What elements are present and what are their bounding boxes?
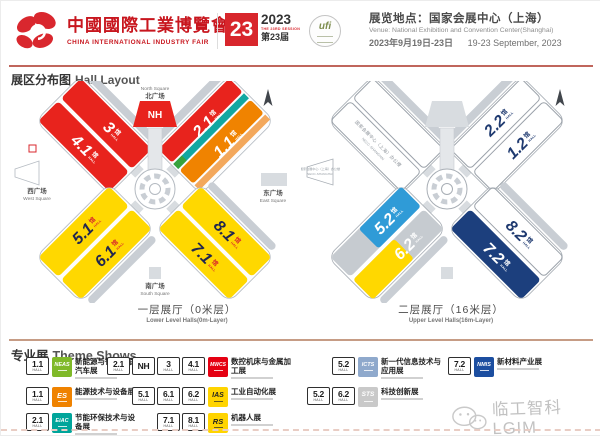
map-lower-level: 3 馆 HALL 4.1 馆 HALL 2.1 馆 HALL <box>9 81 301 303</box>
svg-text:South Square: South Square <box>140 291 170 297</box>
hall-badge: 2.1HALL <box>107 357 130 375</box>
hall-badge: 1.1HALL <box>26 387 49 405</box>
legend-item-icts: 5.2HALL ICTS 新一代信息技术与应用展 <box>332 357 445 379</box>
show-logo-icts-icon: ICTS <box>358 357 378 377</box>
compass-icon <box>556 89 565 106</box>
hall-badge: 7.2HALL <box>448 357 471 375</box>
caption-lower-level: 一层展厅（0米层） Lower Level Halls(0m-Layer) <box>41 302 333 324</box>
show-name: 节能环保技术与设备展 <box>75 413 137 435</box>
hall-badge: 5.2HALL <box>307 387 330 405</box>
session-number: 23 <box>225 13 258 46</box>
hall-badge: 6.2HALL <box>332 387 355 405</box>
legend-item-sts: 5.2HALL 6.2HALL STS 科技创新展 <box>307 387 445 407</box>
south-corridor <box>441 267 453 279</box>
north-square-label: North Square 北广场 <box>141 86 170 100</box>
date-cn: 2023年9月19日-23日 <box>369 38 453 48</box>
leaf-southeast: 8.2 馆 HALL 7.2 馆 HALL <box>448 177 574 303</box>
show-logo-ias-icon: IAS <box>208 387 228 407</box>
show-logo-es-icon: ES <box>52 387 72 407</box>
legend-item-ias: 5.1HALL 6.1HALL 6.2HALL IAS 工业自动化展 <box>132 387 295 407</box>
west-square-label: 西广场 West Square <box>23 186 51 202</box>
hall-badge: 1.1HALL <box>26 357 49 375</box>
svg-text:North Square: North Square <box>141 86 170 92</box>
hall-badge: 5.2HALL <box>332 357 355 375</box>
ciif-hall-layout-flyer: 中國國際工業博覽會 CHINA INTERNATIONAL INDUSTRY F… <box>0 0 600 436</box>
legend-item-es: 1.1HALL ES 能源技术与设备展 <box>26 387 137 407</box>
legend-item-mwcs: 2.1HALL NH 3HALL 4.1HALL MWCS 数控机床与金属加工展 <box>107 357 295 379</box>
svg-text:南广场: 南广场 <box>145 281 165 290</box>
ufi-logo-icon: ufi <box>309 15 341 47</box>
show-name: 新一代信息技术与应用展 <box>381 357 445 379</box>
legend-item-nmis: 7.2HALL NMIS 新材料产业展 <box>448 357 569 377</box>
header: 中國國際工業博覽會 CHINA INTERNATIONAL INDUSTRY F… <box>1 1 600 63</box>
show-name: 机器人展 <box>231 413 295 426</box>
svg-text:West Square: West Square <box>23 196 51 202</box>
hall-badge: 6.2HALL <box>182 387 205 405</box>
fair-title-en: CHINA INTERNATIONAL INDUSTRY FAIR <box>67 39 217 46</box>
date-en: 19-23 September, 2023 <box>468 38 562 48</box>
east-corridor <box>261 173 287 186</box>
show-name: 能源技术与设备展 <box>75 387 137 400</box>
hall-nh-label: NH <box>148 110 162 121</box>
map-upper-level: 国家会展中心（上海）办公楼 NECC-SHANGHAI 2.2 馆 HALL 1… <box>301 81 593 303</box>
compass-icon <box>264 89 273 106</box>
central-hub <box>135 169 175 209</box>
show-logo-sts-icon: STS <box>358 387 378 407</box>
show-name: 科技创新展 <box>381 387 445 400</box>
bottom-dashed-line <box>1 429 600 431</box>
west-hotel-marker <box>29 145 36 152</box>
ufi-decor-lines <box>317 36 333 43</box>
west-annex-label-cn: 国家会展中心（上海）办公楼 <box>301 166 340 171</box>
section-rule <box>9 65 593 67</box>
venue-block: 展览地点：国家会展中心（上海） Venue: National Exhibiti… <box>369 12 562 49</box>
east-square-label: 东广场 East Square <box>260 188 287 204</box>
north-corridor <box>440 128 454 170</box>
session-badge: 23 2023 THE 23RD SESSION 第23届 <box>225 13 300 46</box>
show-logo-mwcs-icon: MWCS <box>208 357 228 377</box>
show-name: 新材料产业展 <box>497 357 569 370</box>
west-annex-label-en: NECC-SHANGHAI <box>307 172 333 176</box>
show-name: 数控机床与金属加工展 <box>231 357 295 379</box>
venue-cn: 展览地点：国家会展中心（上海） <box>369 12 562 26</box>
session-subtitle-cn: 第23届 <box>261 33 300 42</box>
hall-badge: NH <box>132 357 155 375</box>
session-subtitle-en: THE 23RD SESSION <box>261 28 300 32</box>
svg-text:东广场: 东广场 <box>263 188 283 197</box>
dates-line: 2023年9月19日-23日 19-23 September, 2023 <box>369 38 562 49</box>
svg-text:East Square: East Square <box>260 198 287 204</box>
west-annex <box>15 161 39 185</box>
hall-badge: 3HALL <box>157 357 180 375</box>
svg-text:北广场: 北广场 <box>145 91 165 100</box>
north-corridor <box>148 128 162 170</box>
header-divider <box>217 13 218 49</box>
south-square-label: 南广场 South Square <box>140 281 170 297</box>
caption-upper-level: 二层展厅（16米层） Upper Level Halls(16m-Layer) <box>341 302 561 324</box>
central-hub <box>427 169 467 209</box>
hall-badge: 5.1HALL <box>132 387 155 405</box>
session-year: 2023 <box>261 13 300 27</box>
legend-rule <box>9 339 593 341</box>
hall-badge: 6.1HALL <box>157 387 180 405</box>
south-corridor <box>149 267 161 279</box>
legend-item-eiac: 2.1HALL EiAC 节能环保技术与设备展 <box>26 413 137 435</box>
show-name: 工业自动化展 <box>231 387 295 400</box>
hall-badge: 4.1HALL <box>182 357 205 375</box>
show-logo-nmis-icon: NMIS <box>474 357 494 377</box>
venue-en: Venue: National Exhibition and Conventio… <box>369 27 562 35</box>
show-logo-neas-icon: NEAS <box>52 357 72 377</box>
fair-butterfly-logo-icon <box>13 9 63 55</box>
svg-text:西广场: 西广场 <box>27 186 47 195</box>
fair-title: 中國國際工業博覽會 CHINA INTERNATIONAL INDUSTRY F… <box>67 11 217 46</box>
north-hall-shape <box>425 101 469 127</box>
fair-title-cn: 中國國際工業博覽會 <box>67 11 217 36</box>
ufi-text: ufi <box>319 21 331 32</box>
